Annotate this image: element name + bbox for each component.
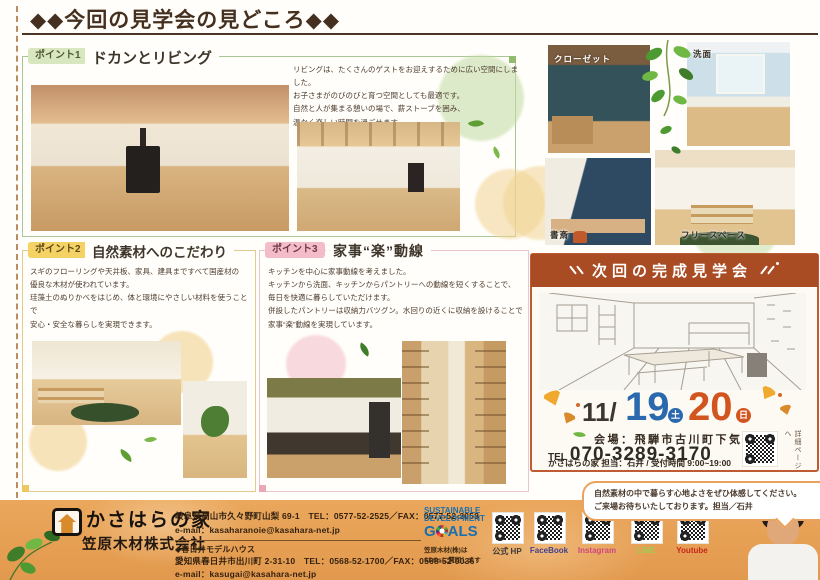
- study-label: 書斎: [550, 229, 569, 241]
- event-qr-code: [742, 431, 778, 467]
- ginkgo-leaf-icon: [560, 411, 576, 426]
- rug-shape: [71, 403, 140, 421]
- photo-study: 書斎: [545, 158, 651, 245]
- flyer-page: ◆◆今回の見学会の見どころ◆◆ ポイント1 ドカンとリビング リビングは、たくさ…: [0, 0, 820, 580]
- photo-plant-counter: [183, 381, 247, 478]
- ginkgo-leaf-icon: [779, 404, 793, 417]
- ginkgo-leaf-icon: [542, 388, 564, 408]
- mirror-shape: [716, 54, 765, 93]
- stool-shape: [573, 231, 588, 243]
- plant-shape: [201, 406, 229, 437]
- leaf-icon: [573, 429, 586, 439]
- slash-decor-left: [570, 262, 584, 279]
- qr-link-label-2: Instagram: [569, 546, 625, 555]
- pantry-shelves-left: [402, 350, 429, 464]
- decor-dot: [576, 403, 580, 407]
- leaf-icon: [144, 433, 157, 445]
- point1-title: ドカンとリビング: [85, 47, 219, 68]
- qr-link-label-4: Youtube: [664, 546, 720, 555]
- bookshelf-shape: [38, 388, 104, 403]
- pantry-shelves-right: [475, 350, 506, 464]
- event-info: かさはらの家 担当：石井 / 受付時間 9:00~19:00: [548, 457, 731, 469]
- fridge-shape: [369, 402, 390, 458]
- corner-square-pink: [259, 485, 266, 492]
- leaf-icon: [490, 146, 503, 158]
- point2-description: スギのフローリングや天井板、家具、建具まですべて国産材の 優良な木材が使われてい…: [30, 265, 252, 331]
- point3-section: ポイント3 家事“楽”動線 キッチンを中心に家事動線を考えました。 キッチンから…: [259, 250, 529, 492]
- sdgs-note: 笠原木材(株)は SDGsに賛同します: [424, 546, 481, 566]
- low-bookshelf-shape: [691, 205, 753, 224]
- next-event-header: 次回の完成見学会: [531, 254, 818, 287]
- wood-stove-shape: [126, 146, 160, 193]
- sdgs-logo: SUSTAINABLE DEVELOPMENT GALS: [424, 507, 485, 540]
- event-dow-sun: 日: [736, 408, 751, 423]
- photo-free-space: フリースペース: [655, 150, 795, 245]
- corner-square-yellow: [22, 485, 29, 492]
- photo-washroom: 洗面: [687, 42, 790, 146]
- left-border-dashes: [16, 6, 18, 498]
- corner-square-green: [509, 56, 516, 63]
- title-underline: [22, 33, 818, 35]
- model-house-name: ◆春日井モデルハウス: [175, 544, 255, 555]
- sdgs-goals: GALS: [424, 524, 485, 540]
- photo-living-room-stove: [31, 85, 289, 231]
- point2-badge: ポイント2: [28, 242, 88, 258]
- next-event-title: 次回の完成見学会: [592, 260, 752, 281]
- point1-description: リビングは、たくさんのゲストをお迎えするために広い空間にしました。 お子さまがの…: [293, 63, 521, 129]
- closet-label: クローゼット: [554, 53, 611, 65]
- leaf-icon: [357, 342, 373, 356]
- photo-closet: クローゼット: [548, 45, 650, 153]
- sdgs-wheel-icon: [436, 525, 448, 537]
- model-house-email: e-mail：kasugai@kasahara-net.jp: [175, 568, 316, 580]
- interior-sketch: [539, 293, 806, 390]
- point3-title: 家事“楽”動線: [326, 241, 431, 261]
- event-qr-caption: 詳細ページへ: [782, 430, 802, 470]
- page-title: ◆◆今回の見学会の見どころ◆◆: [30, 4, 340, 34]
- slash-decor-right: [760, 262, 779, 279]
- branch-leaves-illustration: [638, 38, 700, 158]
- point1-section: ポイント1 ドカンとリビング リビングは、たくさんのゲストをお迎えするために広い…: [22, 56, 516, 237]
- event-month: 11/: [582, 397, 617, 428]
- event-day-19: 19: [625, 385, 670, 430]
- decor-dot: [778, 393, 782, 397]
- brand-house-icon: [52, 508, 82, 536]
- qr-official-hp: [492, 512, 524, 544]
- photo-living-dining: [297, 122, 460, 231]
- staff-shirt-shape: [748, 544, 818, 580]
- photo-loft-hall: [32, 341, 181, 425]
- staff-speech-bubble: 自然素材の中で暮らす心地よさをぜひ体感してください。 ご来場お待ちいたしておりま…: [582, 481, 820, 521]
- photo-pantry: [402, 341, 506, 484]
- head-office-email: e-mail：kasaharanoie@kasahara-net.jp: [175, 524, 340, 536]
- dresser-shape: [552, 116, 593, 144]
- point1-badge: ポイント1: [28, 48, 88, 64]
- point3-badge: ポイント3: [265, 242, 325, 258]
- freespace-label: フリースペース: [681, 229, 746, 241]
- next-event-card: 次回の完成見学会 11/: [530, 253, 819, 472]
- point2-section: ポイント2 自然素材へのこだわり スギのフローリングや天井板、家具、建具まですべ…: [22, 250, 256, 492]
- photo-kitchen: [267, 378, 401, 478]
- qr-facebook: [534, 512, 566, 544]
- tv-shape: [408, 163, 424, 191]
- address-divider: [175, 540, 421, 541]
- event-day-20: 20: [688, 385, 733, 430]
- point2-title: 自然素材へのこだわり: [85, 241, 234, 261]
- leaf-icon: [118, 449, 134, 462]
- event-dow-sat: 土: [668, 408, 683, 423]
- point3-description: キッチンを中心に家事動線を考えました。 キッチンから洗面、キッチンからパントリー…: [268, 265, 524, 331]
